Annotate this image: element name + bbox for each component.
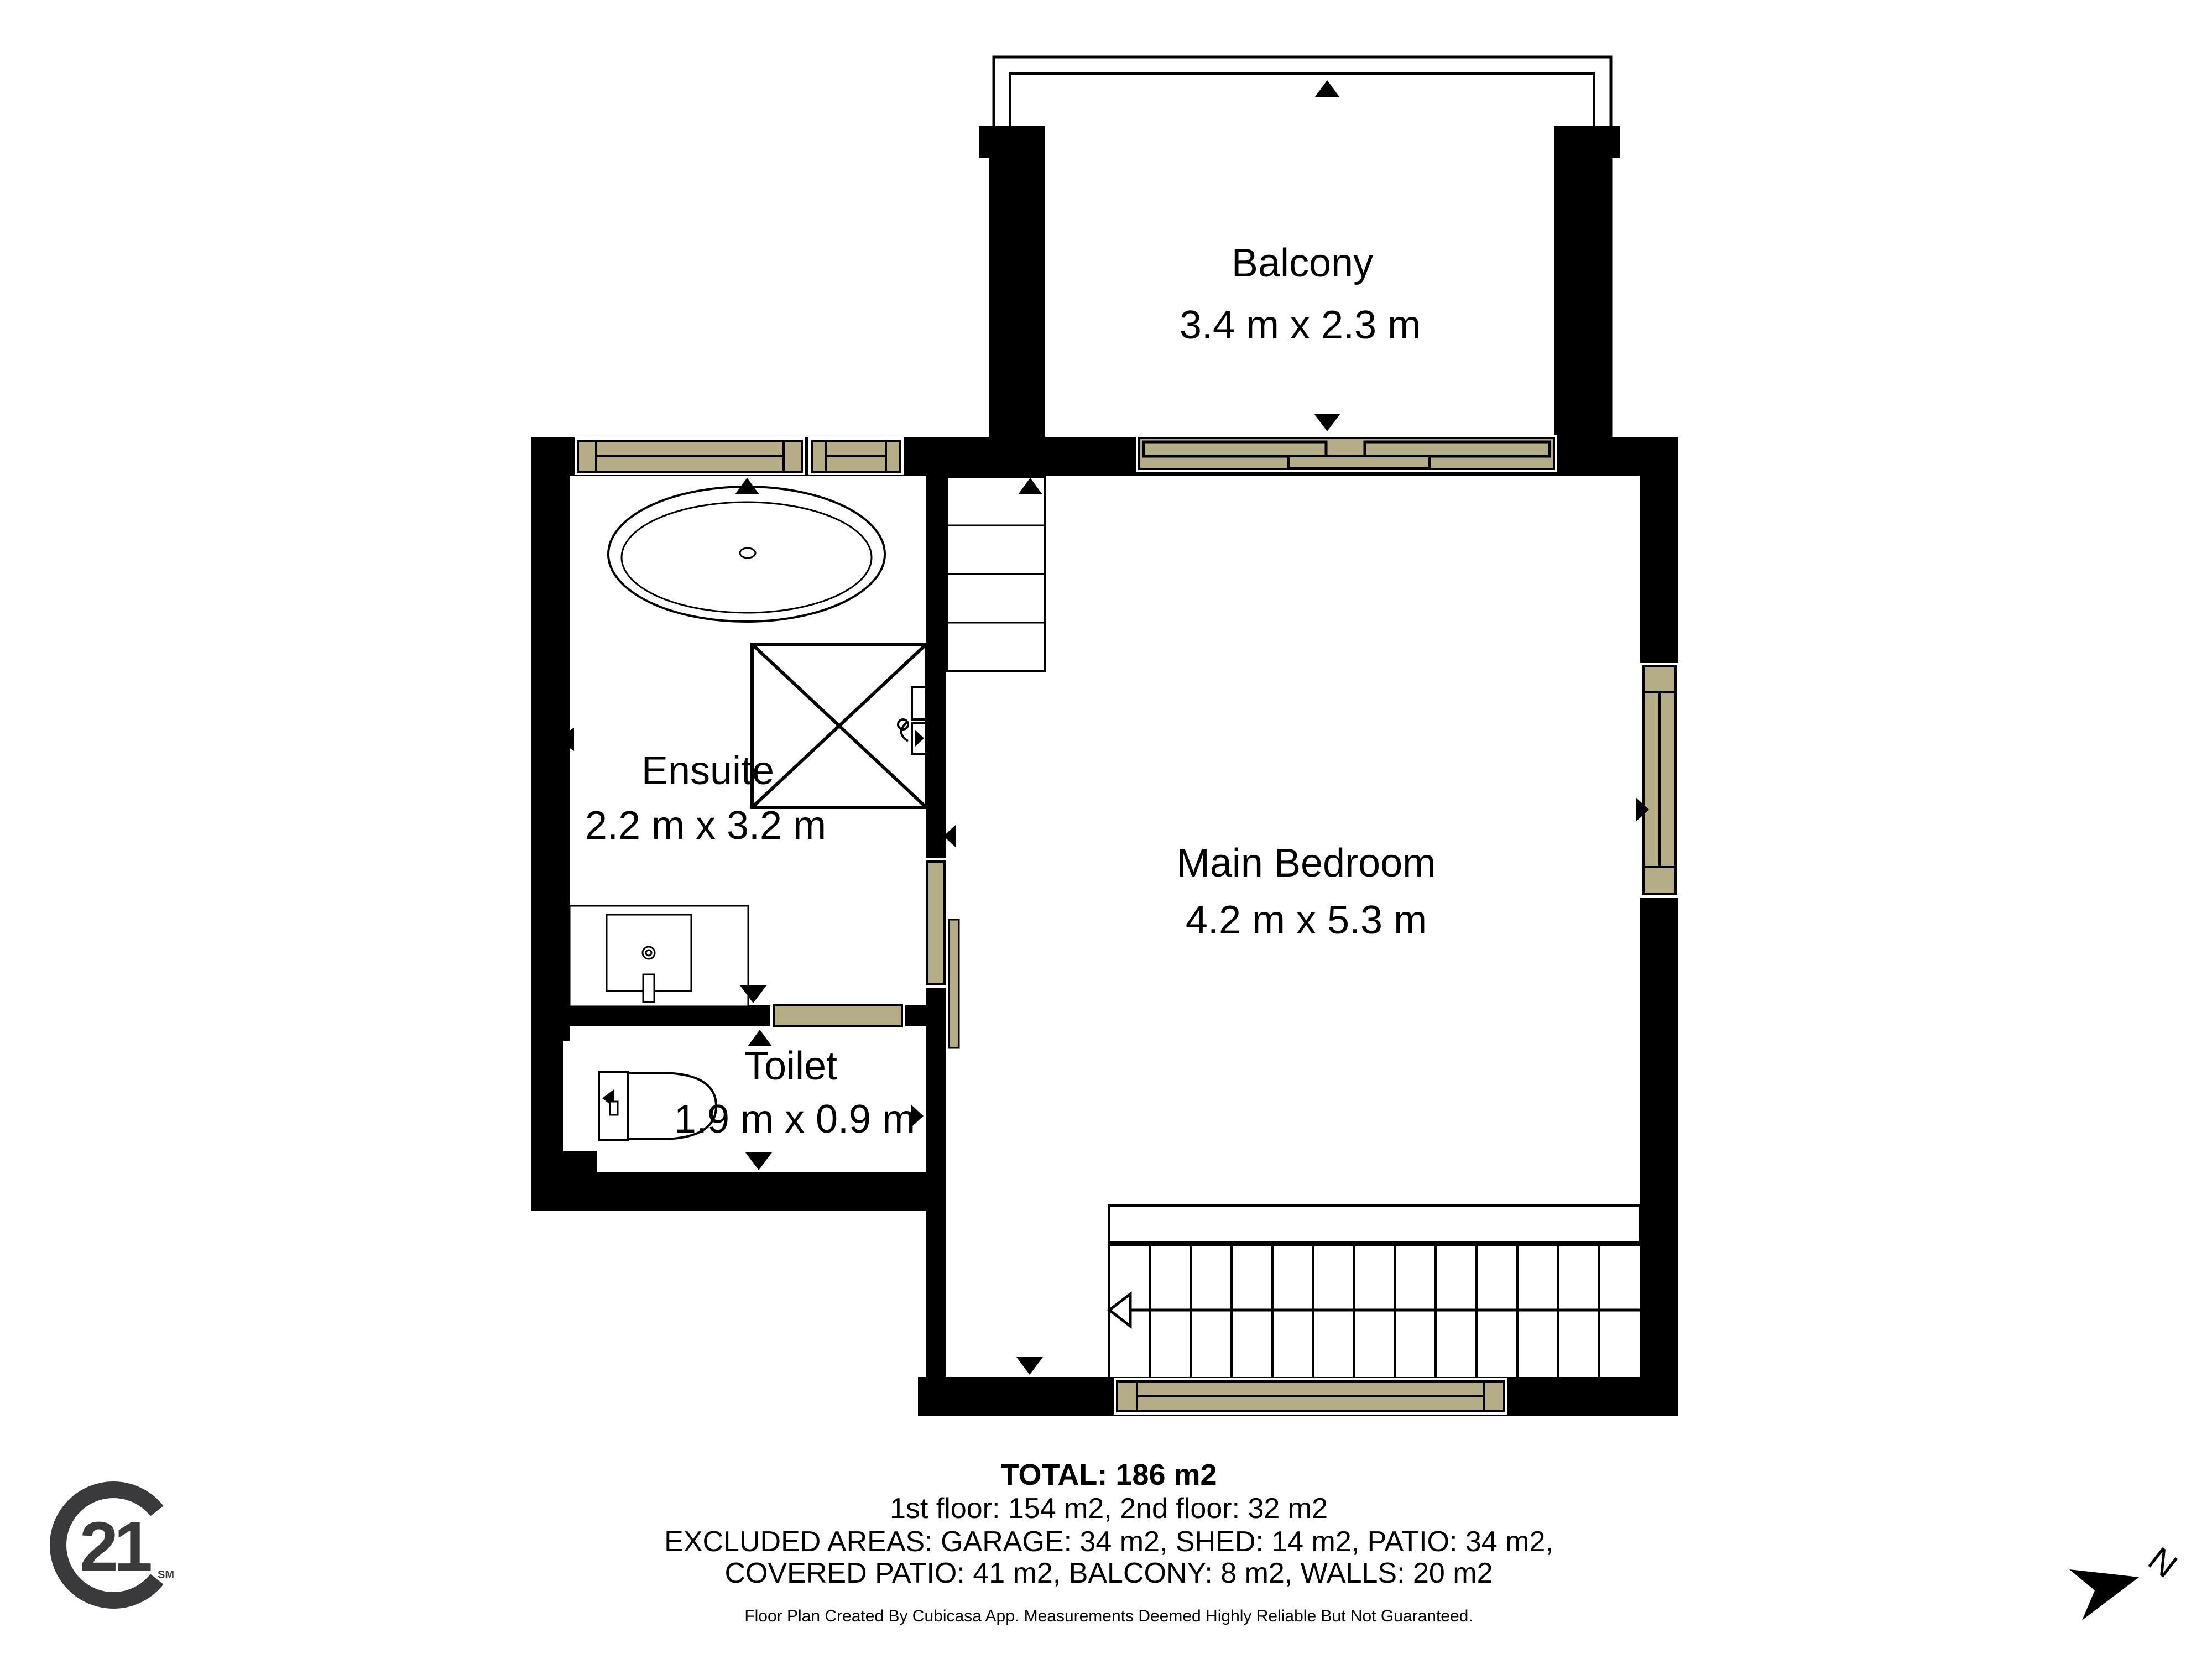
toilet-alcove-ledge <box>563 1151 597 1173</box>
ensuite-label: Ensuite <box>641 749 774 793</box>
toilet-dims: 1.9 m x 0.9 m <box>674 1097 915 1141</box>
bathtub-drain <box>740 548 755 558</box>
wall-toilet-bottom <box>531 1172 946 1211</box>
floor-plan-canvas: Balcony 3.4 m x 2.3 m Ensuite 2.2 m x 3.… <box>0 0 2212 1659</box>
balcony-door-panel-left <box>1144 442 1326 456</box>
century21-servicemark: SM <box>158 1569 174 1581</box>
footer-disclaimer: Floor Plan Created By Cubicasa App. Meas… <box>744 1607 1473 1625</box>
ensuite-doorway <box>927 862 945 984</box>
balcony-door-panel-right <box>1365 442 1550 456</box>
balcony-label: Balcony <box>1232 241 1373 285</box>
toilet-sliding-door <box>774 1005 902 1026</box>
footer-floors: 1st floor: 154 m2, 2nd floor: 32 m2 <box>890 1493 1328 1525</box>
sink-faucet <box>643 974 654 1002</box>
shower-valve <box>912 687 926 719</box>
wall-right <box>1640 437 1678 1416</box>
sink-drain-inner <box>646 950 651 956</box>
balcony-right-post-step <box>1610 126 1620 158</box>
balcony-dims: 3.4 m x 2.3 m <box>1180 303 1421 347</box>
ensuite-door-leaf <box>949 920 959 1048</box>
stair-landing <box>1109 1206 1640 1243</box>
main-bedroom-label: Main Bedroom <box>1177 841 1436 885</box>
footer-total: TOTAL: 186 m2 <box>1000 1458 1217 1491</box>
ensuite-dims: 2.2 m x 3.2 m <box>585 804 826 848</box>
toilet-alcove-niche <box>563 1041 597 1151</box>
balcony-left-post-step <box>979 126 989 158</box>
balcony-right-wall <box>1554 126 1610 438</box>
wall-divider-upper <box>926 437 946 863</box>
balcony-door-panel-middle <box>1288 456 1430 468</box>
toilet-flush-button <box>610 1102 618 1115</box>
main-bedroom-dims: 4.2 m x 5.3 m <box>1186 898 1427 942</box>
footer-excluded-2: COVERED PATIO: 41 m2, BALCONY: 8 m2, WAL… <box>724 1557 1493 1589</box>
footer-excluded-1: EXCLUDED AREAS: GARAGE: 34 m2, SHED: 14 … <box>664 1526 1553 1558</box>
toilet-label: Toilet <box>744 1044 837 1088</box>
balcony-left-wall <box>989 126 1045 438</box>
floor-plan-page: Balcony 3.4 m x 2.3 m Ensuite 2.2 m x 3.… <box>0 0 2212 1659</box>
century21-number: 21 <box>80 1507 151 1585</box>
bedroom-fixtures <box>947 477 1045 671</box>
